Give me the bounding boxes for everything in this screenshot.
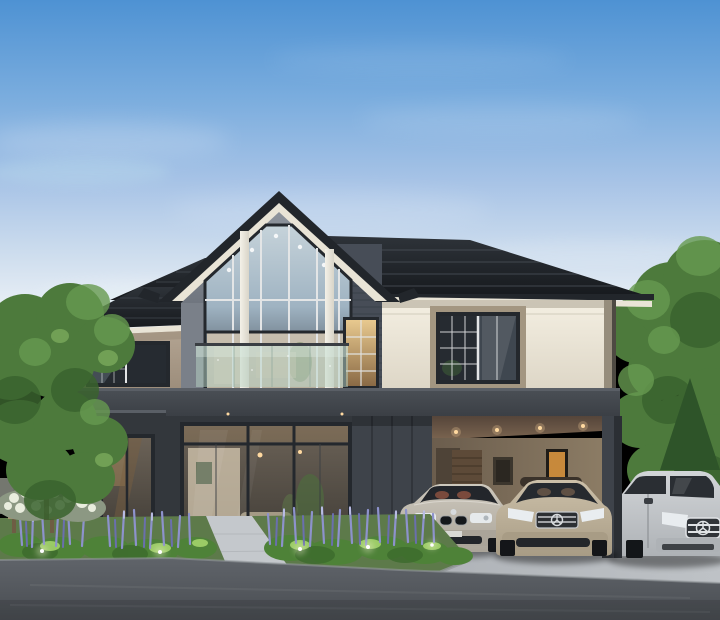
second-floor-right-wing: [380, 300, 616, 390]
sedan-wheel-left: [500, 540, 515, 556]
bmw-headlight-right: [470, 513, 492, 523]
right-wing-window: [430, 306, 526, 390]
balcony-rail-cap: [195, 343, 349, 346]
car-mercedes-suv: [608, 471, 720, 568]
carport-ceiling: [432, 416, 620, 440]
gable-side-window: [343, 317, 379, 389]
carport-small-window: [493, 457, 513, 485]
suv-wheel: [626, 540, 643, 558]
suv-grille: [686, 518, 720, 538]
sedan-wheel-right: [592, 540, 607, 556]
mercedes-grille: [536, 512, 578, 528]
balcony: [195, 343, 349, 387]
house-rendering: [0, 0, 720, 620]
rendering-canvas: [0, 0, 720, 620]
bmw-roundel: [451, 509, 457, 515]
suv-mirror: [644, 498, 653, 504]
